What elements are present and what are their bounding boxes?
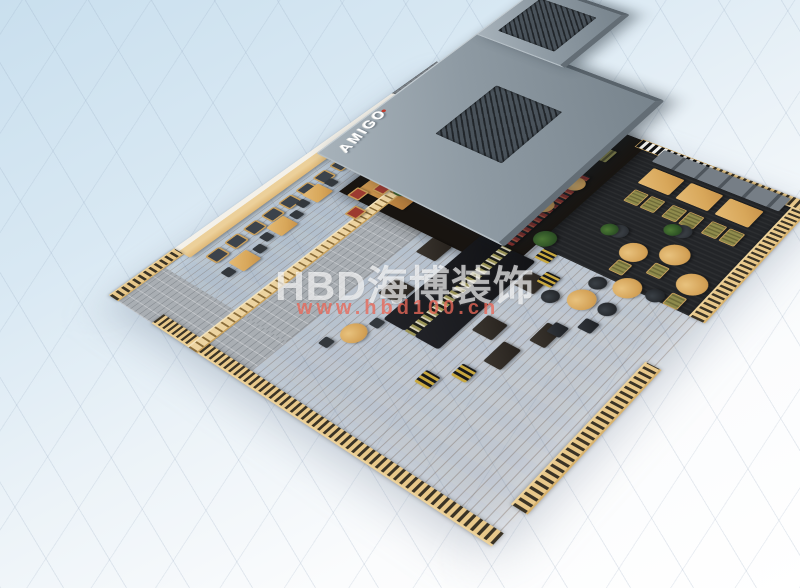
render-stage: AMIGO HBD海博装饰 www.hbd100.cn [0,0,800,588]
